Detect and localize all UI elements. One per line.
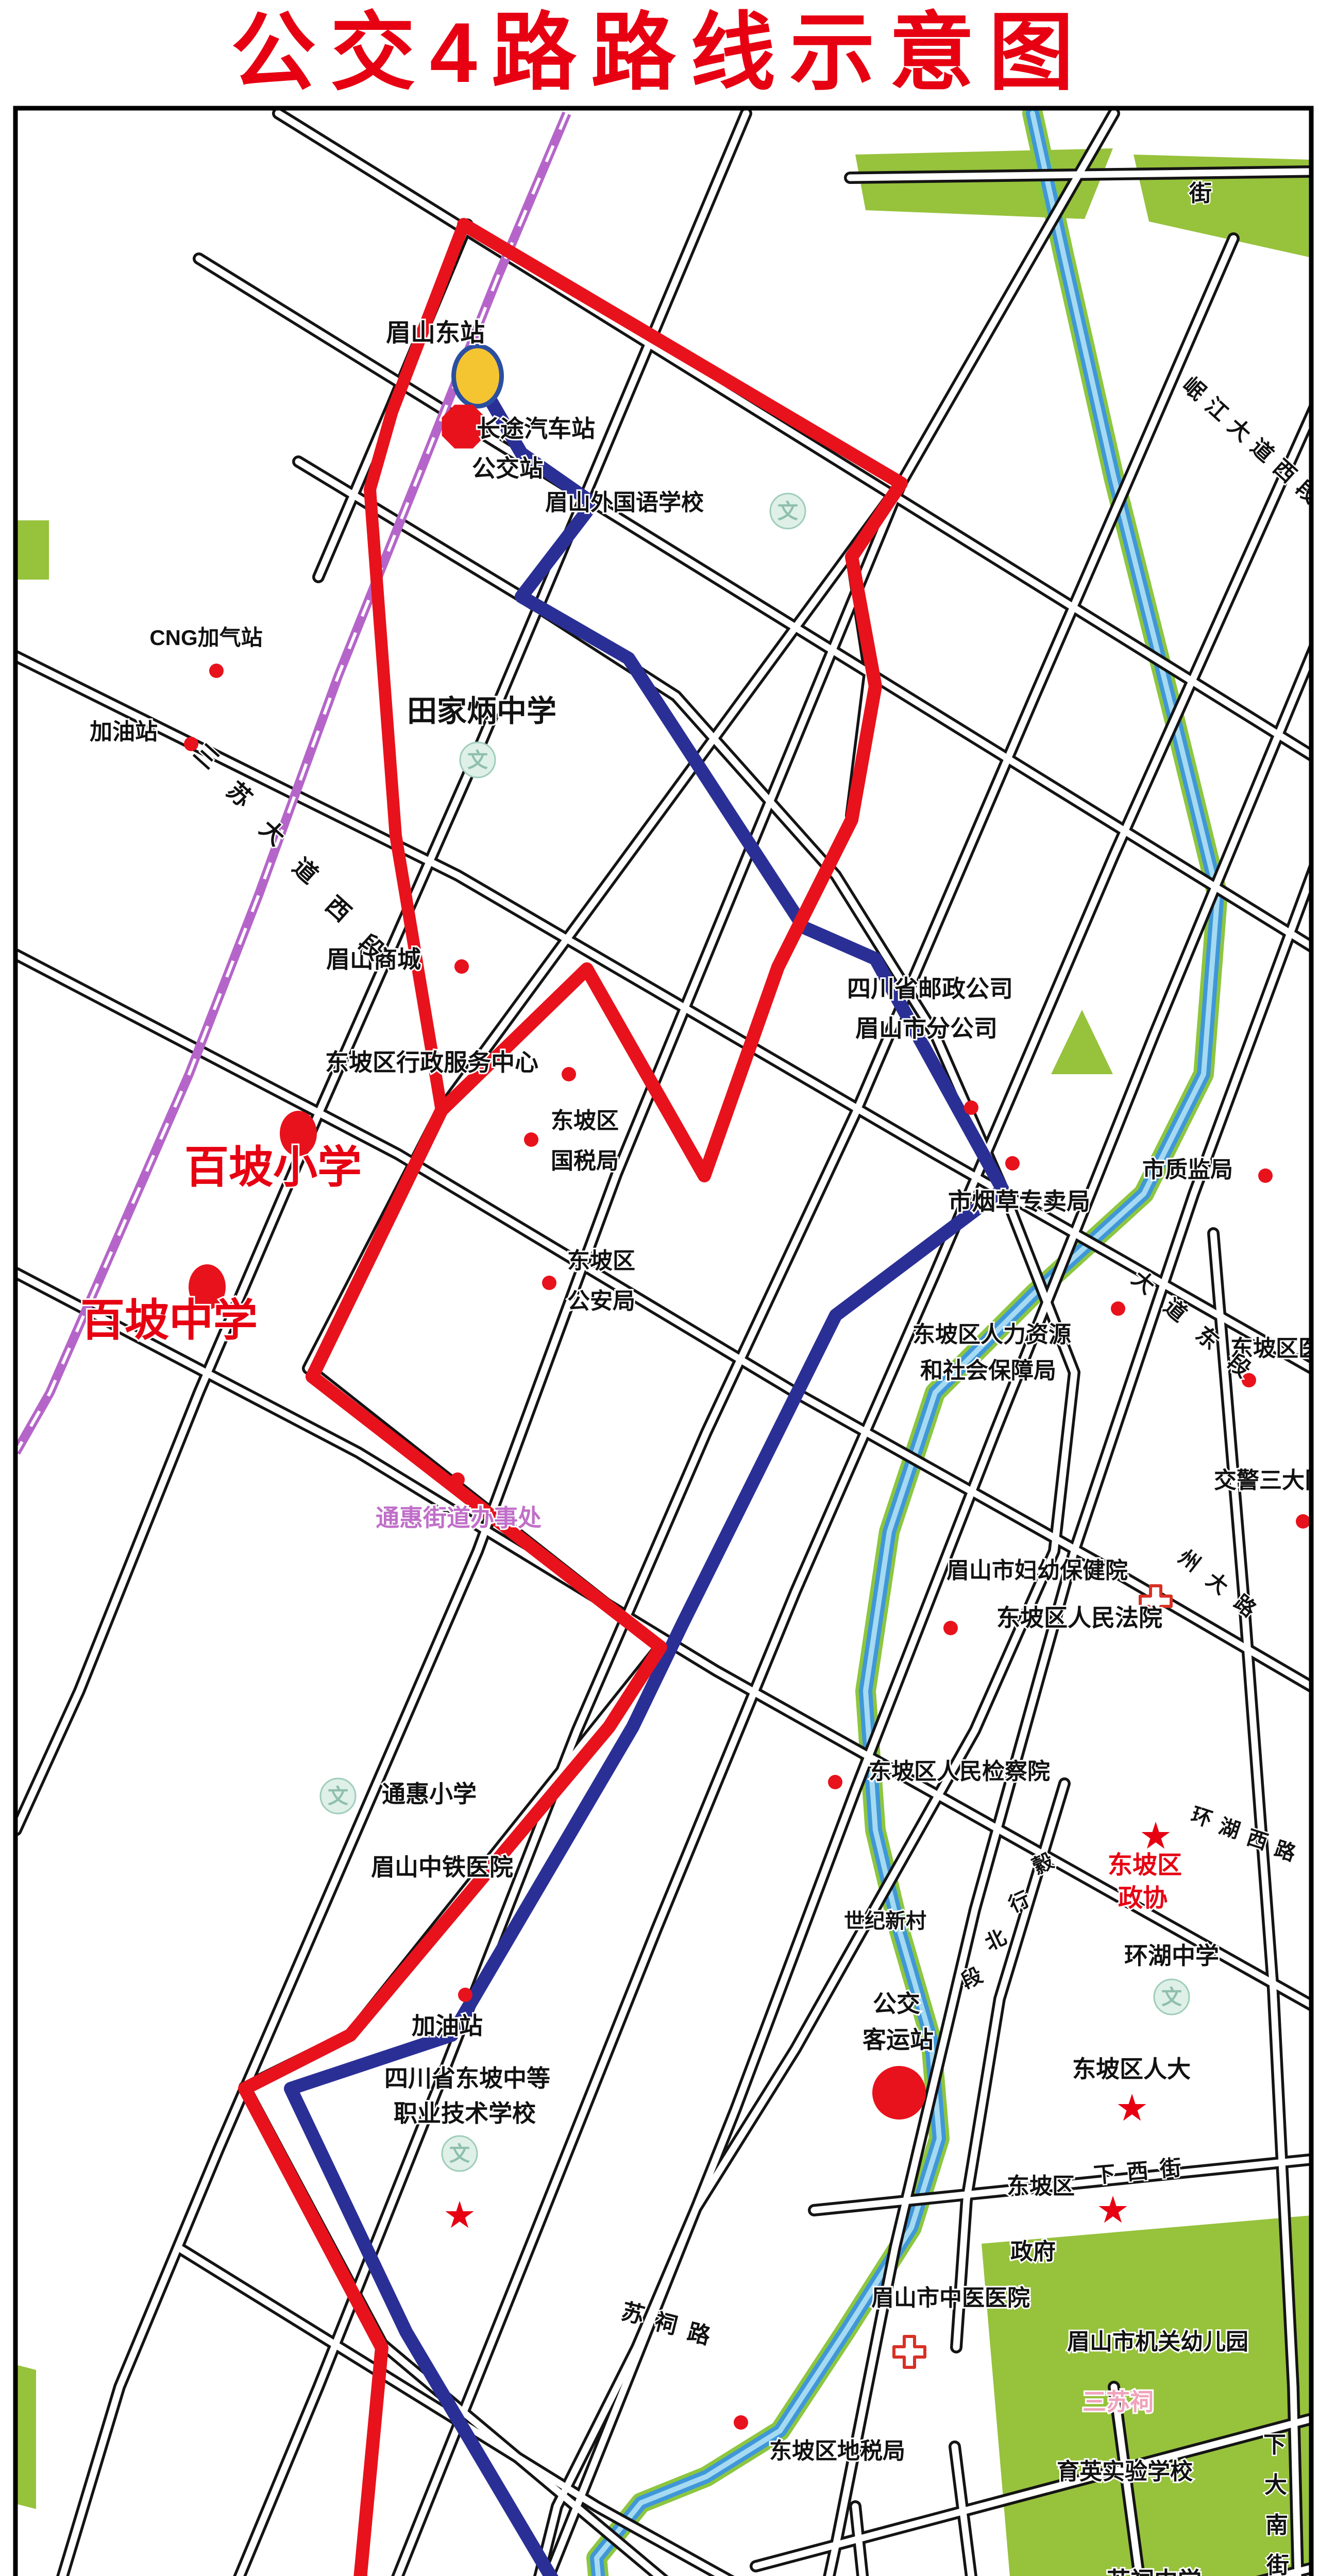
poi-label: 东坡区 xyxy=(551,1108,619,1133)
poi-label: 东坡区人大 xyxy=(1072,2056,1191,2082)
road-name-label: 大 xyxy=(1202,1568,1232,1599)
poi-label: 国税局 xyxy=(551,1148,619,1174)
red-dot-marker xyxy=(184,737,198,751)
road-name-label: 道 xyxy=(288,853,323,888)
poi-label: 百坡中学 xyxy=(80,1296,258,1345)
poi-label: 和社会保障局 xyxy=(920,1358,1056,1383)
poi-label: 公交 xyxy=(873,1990,920,2017)
road-name-label: 北 xyxy=(982,1926,1010,1955)
road-name-label: 下 xyxy=(1263,2432,1286,2458)
bus-terminal-circle-icon xyxy=(872,2066,926,2120)
poi-label: 通惠街道办事处 xyxy=(376,1504,542,1531)
poi-label: 通惠小学 xyxy=(382,1781,477,1807)
poi-label: 苏祠中学 xyxy=(1107,2567,1202,2576)
star-icon: ★ xyxy=(1096,2190,1130,2231)
road-name-label: 湖 xyxy=(1216,1815,1243,1843)
red-dot-marker xyxy=(458,1988,472,2002)
poi-label: 眉山中铁医院 xyxy=(371,1854,513,1880)
poi-label: 世纪新村 xyxy=(844,1910,926,1933)
poi-label: 东坡区人民检察院 xyxy=(869,1759,1050,1784)
road-name-label: 下 xyxy=(1093,2161,1117,2187)
road-casing xyxy=(60,239,1233,2576)
route-map: ★★★★文文文文文文文文文眉山东站长途汽车站公交站眉山外国语学校CNG加气站加油… xyxy=(0,0,1319,2576)
red-dot-marker xyxy=(964,1100,978,1115)
road-name-label: 江 xyxy=(1200,393,1233,426)
road-name-label: 街 xyxy=(1158,2155,1182,2181)
red-dot-marker xyxy=(562,1067,576,1081)
red-dot-marker xyxy=(450,1472,465,1487)
hospital-cross-icon xyxy=(894,2336,925,2367)
poi-label: 眉山市妇幼保健院 xyxy=(946,1558,1128,1583)
map-content: ★★★★文文文文文文文文文眉山东站长途汽车站公交站眉山外国语学校CNG加气站加油… xyxy=(2,113,1319,2576)
poi-label: 环湖中学 xyxy=(1124,1942,1219,1969)
road-name-label: 段 xyxy=(1291,476,1319,508)
road-name-label: 道 xyxy=(1246,434,1278,467)
poi-label: 客运站 xyxy=(863,2026,934,2053)
page-title: 公交4路路线示意图 xyxy=(0,0,1319,106)
star-icon: ★ xyxy=(1139,1816,1173,1857)
poi-label: 公安局 xyxy=(567,1289,635,1314)
school-wen-icon-glyph: 文 xyxy=(328,1785,348,1808)
poi-label: 东坡区 xyxy=(1108,1852,1182,1879)
poi-label: 眉山东站 xyxy=(386,319,485,347)
poi-label: 眉山市机关幼儿园 xyxy=(1067,2329,1248,2354)
poi-label: 育英实验学校 xyxy=(1057,2459,1193,2484)
park-area xyxy=(16,2365,36,2509)
park-area xyxy=(1051,1010,1113,1074)
school-wen-icon-glyph: 文 xyxy=(449,2143,470,2165)
train-station-marker xyxy=(456,348,499,404)
poi-label: 田家炳中学 xyxy=(407,694,556,728)
road-name-label: 路 xyxy=(1230,1591,1260,1622)
red-dot-marker xyxy=(943,1621,958,1635)
poi-label: 眉山外国语学校 xyxy=(545,490,704,515)
road-name-label: 街 xyxy=(1266,2553,1289,2576)
poi-label: 东坡区 xyxy=(1007,2174,1075,2199)
road-name-label: 大 xyxy=(1264,2472,1287,2498)
poi-label: 眉山市分公司 xyxy=(855,1015,997,1042)
red-dot-marker xyxy=(828,1775,842,1789)
poi-label: 东坡区人民法院 xyxy=(996,1604,1162,1631)
school-wen-icon-glyph: 文 xyxy=(777,500,798,523)
poi-label: 市烟草专卖局 xyxy=(948,1188,1090,1215)
red-dot-marker xyxy=(542,1276,556,1290)
poi-label: 加油站 xyxy=(90,719,158,744)
school-wen-icon-glyph: 文 xyxy=(467,749,488,772)
red-dot-marker xyxy=(1258,1168,1273,1183)
poi-label: 长途汽车站 xyxy=(477,415,595,442)
road-name-label: 苏 xyxy=(222,776,257,812)
road-name-label: 环 xyxy=(1188,1804,1215,1832)
poi-label: 加油站 xyxy=(412,2012,483,2039)
poi-label: 职业技术学校 xyxy=(394,2100,536,2127)
star-icon: ★ xyxy=(443,2195,477,2236)
red-dot-marker xyxy=(1005,1156,1020,1171)
poi-label: 百坡小学 xyxy=(184,1143,362,1192)
poi-label: 市质监局 xyxy=(1142,1157,1233,1182)
poi-label: 东坡区人力资源 xyxy=(912,1322,1071,1347)
road-name-label: 岷 xyxy=(1178,372,1210,405)
poi-label: 交警三大队 xyxy=(1214,1468,1319,1493)
poi-label: 东坡区地税局 xyxy=(769,2438,905,2464)
school-wen-icon-glyph: 文 xyxy=(1161,1986,1182,2009)
road-name-label: 南 xyxy=(1265,2513,1288,2538)
map-canvas: ★★★★文文文文文文文文文眉山东站长途汽车站公交站眉山外国语学校CNG加气站加油… xyxy=(0,0,1319,2576)
road-name-label: 街 xyxy=(1189,181,1212,206)
road-name-label: 西 xyxy=(320,891,356,926)
road-name-label: 西 xyxy=(1126,2158,1149,2184)
red-dot-marker xyxy=(1296,1514,1310,1529)
road-name-label: 州 xyxy=(1174,1546,1205,1576)
road-name-label: 路 xyxy=(1272,1838,1299,1866)
poi-label: 眉山市中医医院 xyxy=(871,2285,1030,2311)
road-name-label: 路 xyxy=(685,2319,714,2349)
poi-label: 东坡区 xyxy=(567,1248,635,1274)
road-name-label: 大 xyxy=(1223,414,1256,446)
red-dot-marker xyxy=(209,664,224,678)
red-dot-marker xyxy=(734,2415,748,2430)
poi-label: 东坡区行政服务中心 xyxy=(325,1049,538,1076)
red-dot-marker xyxy=(1111,1301,1125,1316)
red-dot-marker xyxy=(454,959,469,974)
poi-label: 政府 xyxy=(1010,2239,1056,2264)
star-icon: ★ xyxy=(1115,2088,1149,2129)
poi-label: 四川省东坡中等 xyxy=(384,2065,550,2092)
poi-label: 四川省邮政公司 xyxy=(847,975,1013,1002)
poi-label: CNG加气站 xyxy=(149,625,262,650)
road xyxy=(60,239,1233,2576)
red-dot-marker xyxy=(524,1132,538,1147)
poi-label: 公交站 xyxy=(472,455,543,482)
poi-label: 政协 xyxy=(1118,1885,1168,1912)
poi-label: 三苏祠 xyxy=(1083,2388,1154,2415)
park-area xyxy=(16,520,49,580)
